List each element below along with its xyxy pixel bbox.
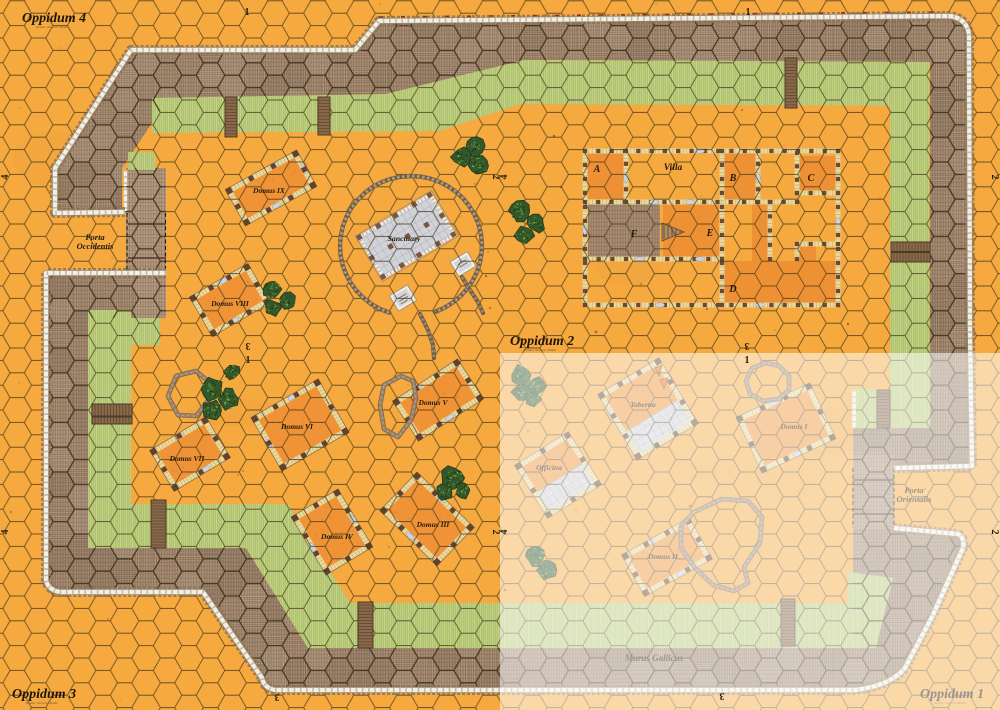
svg-text:4: 4: [499, 530, 510, 535]
svg-text:3: 3: [745, 340, 750, 351]
svg-text:1: 1: [246, 355, 251, 366]
svg-text:4: 4: [0, 530, 11, 535]
svg-text:Domus V: Domus V: [418, 398, 449, 407]
svg-text:2: 2: [989, 175, 1000, 180]
svg-text:Occidentis: Occidentis: [77, 241, 115, 251]
svg-text:E: E: [706, 228, 714, 239]
svg-text:C: C: [808, 173, 815, 184]
svg-text:3: 3: [720, 690, 725, 701]
svg-text:B: B: [729, 173, 737, 184]
svg-text:Oppidum 2: Oppidum 2: [510, 334, 574, 349]
svg-text:Oppidum 3: Oppidum 3: [12, 687, 76, 702]
svg-text:Sanctuary: Sanctuary: [388, 234, 421, 243]
svg-text:1: 1: [745, 355, 750, 366]
svg-text:Dessin / Artwork: Bandit: Dessin / Artwork: Bandit: [26, 701, 58, 705]
svg-text:Dessin / Artwork: Bandit: Dessin / Artwork: Bandit: [36, 25, 68, 29]
svg-text:1: 1: [245, 7, 250, 18]
svg-text:F: F: [630, 229, 638, 240]
svg-text:Domus III: Domus III: [416, 520, 451, 529]
svg-text:Domus VI: Domus VI: [280, 422, 314, 431]
svg-text:1: 1: [746, 7, 751, 18]
svg-text:3: 3: [246, 340, 251, 351]
svg-text:4: 4: [0, 175, 11, 180]
svg-text:Dessin / Artwork: Bandit: Dessin / Artwork: Bandit: [524, 348, 556, 352]
svg-text:Domus VIII: Domus VIII: [210, 299, 250, 308]
svg-text:A: A: [593, 164, 601, 175]
svg-text:2: 2: [989, 530, 1000, 535]
svg-text:Villa: Villa: [664, 163, 683, 173]
svg-text:3: 3: [275, 691, 280, 702]
svg-text:Domus IX: Domus IX: [252, 186, 286, 195]
svg-text:4: 4: [499, 175, 510, 180]
svg-text:Domus VII: Domus VII: [169, 454, 206, 463]
svg-text:D: D: [728, 284, 736, 295]
svg-text:Domus IV: Domus IV: [320, 532, 354, 541]
svg-text:Oppidum 4: Oppidum 4: [22, 11, 86, 26]
